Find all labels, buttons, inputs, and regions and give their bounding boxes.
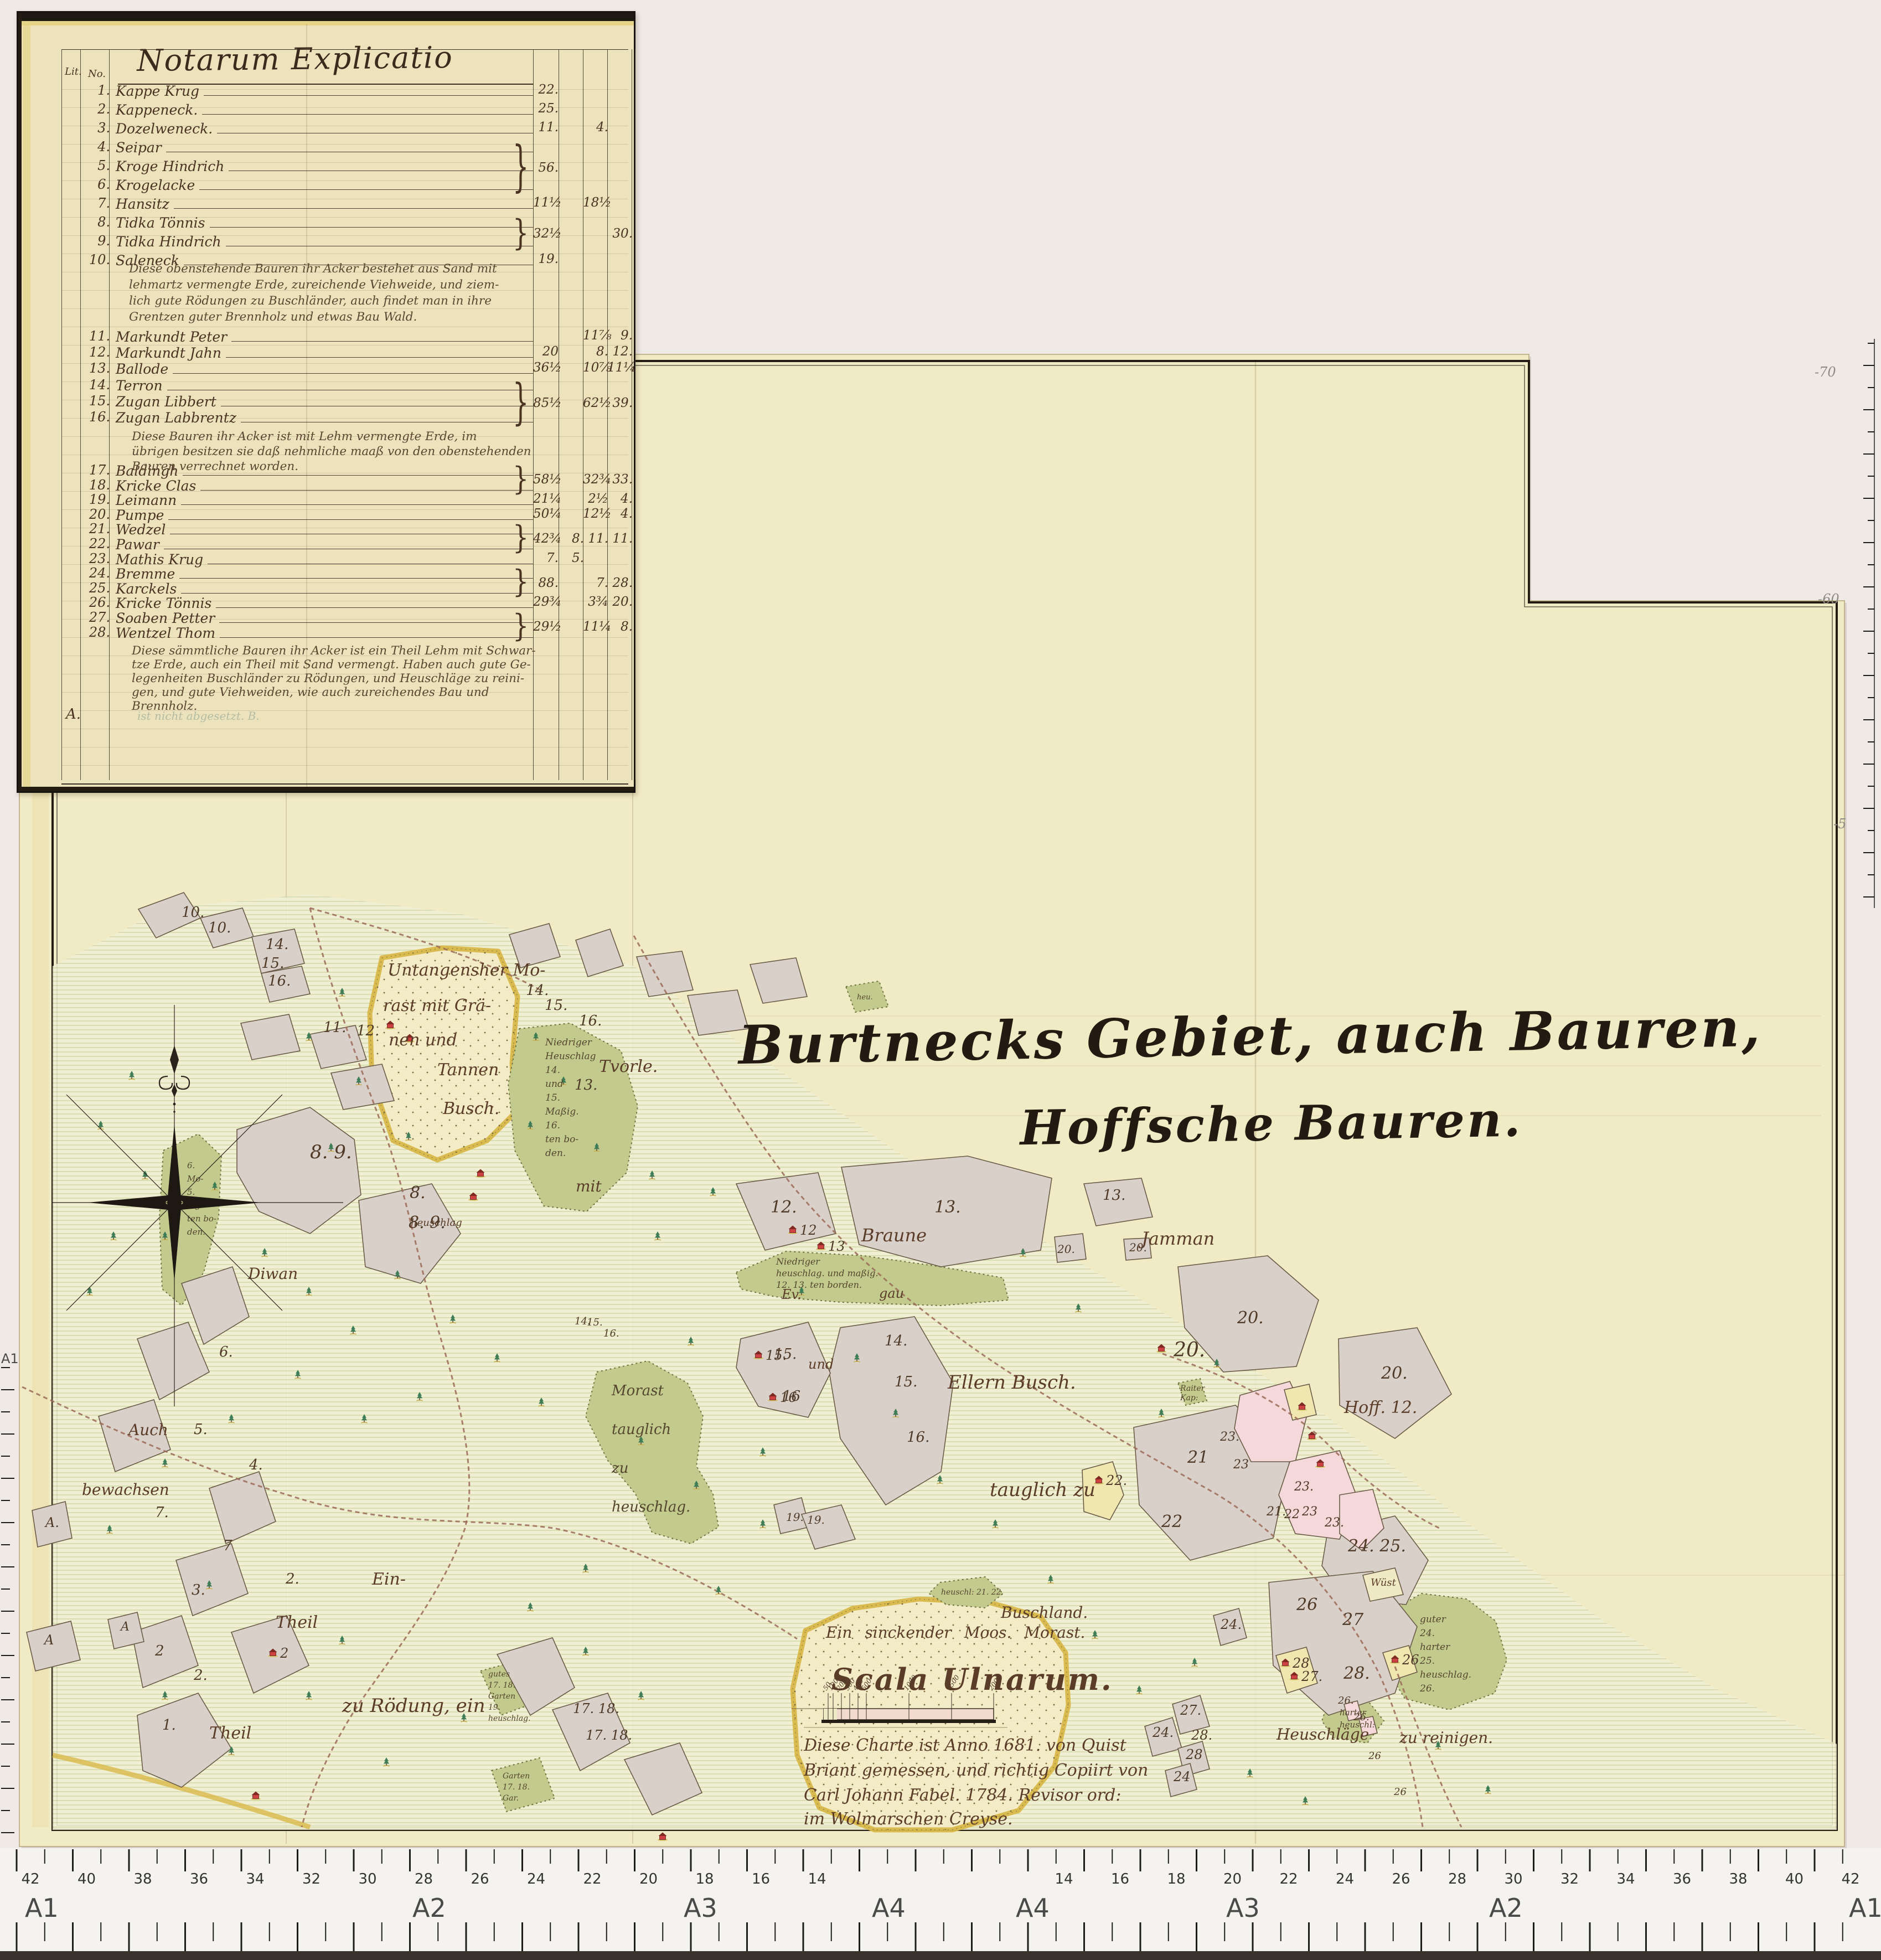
parcel-number: 17. 18. [586, 1727, 632, 1743]
leader-line [231, 341, 533, 342]
row-number: 15. [84, 393, 110, 409]
row-number: 16. [84, 409, 110, 425]
ruler-a-mark: A2 [1489, 1893, 1523, 1923]
farm-name: Kappeneck. [116, 103, 202, 117]
parcel-number: 16. [603, 1328, 619, 1339]
group-brace: } [513, 140, 529, 194]
meadow-label: den. [545, 1148, 566, 1159]
value-cell: 20 [533, 344, 559, 359]
parcel-number: 6. [219, 1344, 233, 1360]
parcel-number: 10. [208, 920, 231, 936]
table-row: Kricke Clas [116, 476, 533, 493]
table-row: Wedzel [116, 520, 533, 537]
meadow-label: den. [187, 1227, 205, 1237]
parcel-number: 7. [155, 1504, 169, 1521]
map-label: zu Rödung, ein [342, 1695, 485, 1717]
ruler-number: 30 [1504, 1871, 1522, 1887]
farm-name: Zugan Libbert [116, 395, 221, 409]
map-label: Ein- [371, 1570, 406, 1589]
leader-line [204, 95, 533, 96]
leader-line [174, 208, 533, 209]
row-number: 24. [84, 565, 110, 581]
value-cell: 3¾ [583, 595, 608, 609]
ruler-number: 20 [1223, 1871, 1242, 1887]
group-brace: } [513, 215, 529, 251]
value-cell: 62½ [583, 396, 608, 410]
faint-note: ist nicht abgesetzt. B. [137, 709, 260, 723]
value-cell: 2½ [583, 492, 608, 506]
farm-name: Hansitz [116, 197, 174, 211]
parcel-number: 24 [1173, 1769, 1191, 1784]
parcel-number: 3. [192, 1582, 205, 1598]
parcel-number: 4. [249, 1457, 263, 1473]
parcel-number: 22 [1161, 1512, 1182, 1531]
map-label: Auch [127, 1421, 168, 1439]
value-cell: 10⅞ [583, 360, 608, 375]
leader-line [202, 114, 533, 115]
table-row: Karckels [116, 579, 533, 596]
group-brace: } [513, 611, 529, 642]
table-row: Terron [116, 376, 533, 393]
value-cell: 22. [533, 82, 559, 97]
parcel-number: 24. 25. [1347, 1536, 1406, 1556]
table-row: Bremme [116, 564, 533, 581]
meadow-label: 6. [187, 1160, 195, 1170]
value-cell: 8. [559, 532, 584, 546]
meadow-label: Garten [503, 1772, 530, 1781]
ruler-number: 36 [190, 1871, 208, 1887]
value-cell: 11⅞ [583, 328, 608, 343]
table-row: Ballode [116, 359, 533, 376]
parcel-number: 23. [1294, 1480, 1314, 1494]
parcel-number: 24. [1220, 1617, 1242, 1632]
map-label: tauglich zu [990, 1479, 1095, 1501]
row-number: 3. [84, 120, 110, 136]
parcel-number: 16. [268, 973, 291, 989]
value-cell: 11¼ [607, 360, 633, 375]
parcel-number: 14. [266, 936, 288, 953]
map-label: Heuschläge [1276, 1725, 1369, 1744]
map-label: Untangensher Mo- [387, 961, 545, 980]
ruler-a-mark: A3 [684, 1893, 717, 1923]
parcel-number: 20. [1381, 1364, 1408, 1383]
row-number: 13. [84, 360, 110, 376]
value-cell: 56. [533, 161, 559, 175]
value-cell: 32¾ [583, 472, 608, 487]
map-label: Ellern Busch. [947, 1371, 1076, 1394]
meadow-label: Niedriger [545, 1037, 592, 1048]
row-number: 8. [84, 214, 110, 230]
leader-line [241, 422, 533, 422]
ruler-number: 36 [1673, 1871, 1691, 1887]
table-row: Tidka Hindrich [116, 232, 533, 249]
ruler-number: 28 [1448, 1871, 1466, 1887]
farm-name: Kappe Krug [116, 84, 204, 98]
row-number: 4. [84, 139, 110, 154]
value-cell: 30. [607, 226, 633, 241]
row-number: 21. [84, 521, 110, 537]
map-label: Buschland. [1000, 1603, 1088, 1622]
value-cell: 11¼ [583, 620, 608, 634]
parcel-number: 8. 9. [310, 1141, 352, 1163]
bottom-ruler: 4240383634323028262422201816141416182022… [0, 1848, 1881, 1960]
parcel-number: 16. [907, 1429, 929, 1446]
value-cell: 9. [607, 328, 633, 343]
parcel-number: 14. [526, 982, 549, 999]
map-label: Tvorle. [599, 1057, 658, 1076]
meadow-label: Morast [611, 1383, 664, 1399]
value-cell: 58½ [533, 472, 559, 487]
leader-line [199, 189, 533, 190]
table-row: Zugan Libbert [116, 392, 533, 409]
table-row: Kappeneck. [116, 100, 533, 117]
meadow-label: guter [1420, 1614, 1446, 1625]
table-row: Pumpe [116, 506, 533, 522]
map-label: gau [879, 1286, 904, 1301]
pencil-mark: -5 [1833, 816, 1846, 832]
row-number: 19. [84, 492, 110, 507]
row-number: 26. [84, 595, 110, 610]
parcel-number: 28. [1343, 1664, 1370, 1683]
ruler-number: 42 [21, 1871, 39, 1887]
value-cell: 8. [607, 620, 633, 634]
meadow-label: 17. 18. [488, 1681, 515, 1690]
row-number: 14. [84, 377, 110, 393]
parcel-number: 12. [771, 1198, 797, 1217]
column-line [80, 49, 81, 780]
row-number: 17. [84, 462, 110, 478]
map-label: Braune [861, 1225, 927, 1246]
leader-line [229, 171, 533, 171]
parcel-number: 13. [1103, 1187, 1125, 1204]
pencil-mark: -60 [1818, 591, 1839, 607]
meadow-label: 17. 18. [503, 1783, 530, 1792]
row-number: 27. [84, 610, 110, 625]
table-row: Zugan Labbrentz [116, 408, 533, 425]
parcel-number: 20. [1237, 1308, 1264, 1328]
ruler-a-mark: A1 [25, 1893, 59, 1923]
farm-name: Kroge Hindrich [116, 159, 229, 173]
value-cell: 11½ [533, 195, 559, 210]
ruler-number: 34 [246, 1871, 264, 1887]
row-number: 12. [84, 344, 110, 360]
meadow-label: ten bo- [187, 1214, 216, 1224]
parcel-number: 15. [587, 1317, 603, 1328]
map-label: Jamman [1138, 1228, 1215, 1249]
parcel-number: 8. 9. [409, 1213, 446, 1232]
parcel-number: 15. [895, 1374, 917, 1390]
value-cell: 19. [533, 252, 559, 266]
farm-name: Markundt Peter [116, 330, 231, 344]
row-number: 2. [84, 101, 110, 117]
parcel-number: 15. [545, 997, 567, 1014]
table-row: Kricke Tönnis [116, 594, 533, 610]
value-cell: 4. [583, 120, 608, 135]
parcel-number: 16. [579, 1013, 602, 1029]
leader-line [166, 152, 533, 152]
value-cell: 50¼ [533, 507, 559, 521]
parcel-number: 20. [1173, 1339, 1205, 1361]
group-brace: } [513, 566, 529, 597]
parcel-number: 22 [1284, 1508, 1300, 1521]
parcel-number: 19. [786, 1510, 804, 1524]
ruler-number: 18 [1167, 1871, 1185, 1887]
parcel-number: 2. [285, 1571, 299, 1587]
parcel-number: A [120, 1620, 130, 1634]
meadow-label: Niedriger [776, 1256, 820, 1267]
meadow-label: heu. [857, 993, 873, 1002]
ruler-number: 34 [1616, 1871, 1635, 1887]
value-cell: 39. [607, 396, 633, 410]
map-label: Diwan [247, 1265, 298, 1283]
meadow-label: zu [611, 1460, 628, 1477]
ruler-number: 22 [583, 1871, 601, 1887]
ruler-number: 26 [471, 1871, 489, 1887]
meadow-label: 19. [488, 1703, 500, 1712]
row-number: 18. [84, 477, 110, 493]
parcel-number: 28 [1185, 1747, 1203, 1762]
parcel-number: 1. [162, 1717, 176, 1734]
meadow-label: und [545, 1079, 564, 1090]
map-parcel [241, 1014, 300, 1060]
table-row: Markundt Peter [116, 327, 533, 344]
meadow-label: 24. [1419, 1628, 1435, 1639]
parcel-number: 14. [885, 1333, 907, 1349]
leader-line [221, 406, 533, 406]
ruler-number: 16 [752, 1871, 770, 1887]
row-number: 7. [84, 195, 110, 211]
table-title: Notarum Explicatio [85, 39, 506, 79]
sheet-border-left [18, 13, 22, 791]
value-cell: 36½ [533, 360, 559, 375]
value-cell: 7. [533, 551, 559, 565]
map-label: Hoff. 12. [1343, 1398, 1417, 1417]
meadow-label: 15. [545, 1092, 560, 1103]
farm-name: Terron [116, 379, 167, 393]
map-label: nen und [389, 1030, 457, 1050]
parcel-number: 5. [194, 1421, 208, 1438]
farm-name: Zugan Labbrentz [116, 411, 241, 425]
value-cell: 4. [607, 507, 633, 521]
value-cell: 29½ [533, 620, 559, 634]
scan-stage: 121315.1622.2827.262 NiedrigerHeuschlag1… [0, 0, 1881, 1960]
table-row: Kappe Krug [116, 81, 533, 98]
value-cell: 88. [533, 576, 559, 590]
table-row: Dozelweneck. [116, 119, 533, 136]
ruled-line [61, 747, 628, 747]
ruler-a-mark: A4 [1016, 1893, 1050, 1923]
value-cell: 29¾ [533, 595, 559, 609]
leader-line [167, 390, 533, 390]
value-cell: 7. [583, 576, 608, 590]
parcel-number: 26 [1393, 1786, 1407, 1798]
parcel-number: 23. [1324, 1516, 1344, 1530]
ruler-number: 40 [1785, 1871, 1804, 1887]
leader-line [226, 357, 533, 358]
map-label: Wüst [1371, 1577, 1397, 1588]
farm-name: Wentzel Thom [116, 626, 220, 640]
note-line: Carl Johann Fabel. 1784. Revisor ord: [804, 1786, 1121, 1805]
parcel-number: 8. [410, 1183, 426, 1203]
parcel-number: 15. [261, 955, 284, 972]
ruler-number: 24 [1336, 1871, 1354, 1887]
value-cell: 25. [533, 101, 559, 116]
sheet-gold-left [23, 24, 30, 787]
ruler-a-mark: A2 [412, 1893, 446, 1923]
column-line [61, 49, 62, 780]
ruled-line [61, 729, 628, 729]
meadow-label: 14. [545, 1065, 560, 1076]
farm-name: Dozelweneck. [116, 122, 217, 136]
ruler-number: 22 [1279, 1871, 1298, 1887]
parcel-number: 19. [807, 1513, 825, 1526]
map-label: Tannen [437, 1060, 499, 1080]
parcel-number: 2 [154, 1643, 164, 1659]
ruler-number: 14 [1055, 1871, 1073, 1887]
column-line [632, 49, 632, 780]
parcel-number: 26. [1337, 1695, 1354, 1706]
leader-line [217, 133, 533, 133]
row-number: 5. [84, 158, 110, 173]
table-row: Soaben Petter [116, 608, 533, 625]
farm-name: Ballode [116, 362, 173, 376]
ruler-a-mark: A4 [872, 1893, 906, 1923]
row-number: 22. [84, 536, 110, 551]
table-paragraph-1: Diese obenstehende Bauren ihr Acker best… [129, 261, 499, 325]
row-number: 23. [84, 551, 110, 566]
parcel-number: 23 [1233, 1458, 1249, 1472]
ruler-number: 38 [1729, 1871, 1747, 1887]
value-cell: 11. [607, 532, 633, 546]
ruler-number: 32 [1560, 1871, 1579, 1887]
ruled-line [61, 765, 628, 766]
farm-name: Seipar [116, 141, 166, 154]
value-cell: 28. [607, 576, 633, 590]
map-title-line2: Hoffsche Bauren. [1018, 1091, 1523, 1156]
table-row: Hansitz [116, 194, 533, 211]
value-cell: 8. [583, 344, 608, 359]
value-cell: 32½ [533, 226, 559, 241]
map-label: mit [576, 1177, 602, 1195]
grid-bottom-line [61, 783, 628, 785]
meadow-label: gutes [488, 1670, 510, 1679]
col-header-no: No. [88, 68, 106, 80]
ruler-number: 16 [1111, 1871, 1129, 1887]
row-number: 10. [84, 252, 110, 267]
parcel-number: 26 [1368, 1750, 1381, 1762]
meadow-label: heuschlag. [1420, 1669, 1471, 1680]
map-label: Theil [209, 1724, 251, 1743]
map-label: Busch. [442, 1099, 499, 1118]
parcel-number: 21. [1266, 1505, 1286, 1519]
house-number: 12 [800, 1223, 817, 1238]
sheet-border-top [18, 13, 634, 21]
house-number: 27. [1301, 1669, 1322, 1684]
meadow-label: heuschlag. [488, 1714, 531, 1723]
meadow-label: tauglich [612, 1421, 671, 1438]
parcel-number: 27. [1180, 1703, 1201, 1718]
parcel-number: 23. [1219, 1430, 1239, 1444]
sheet-gold-strip [18, 21, 634, 25]
meadow-label: Raiter [1180, 1384, 1206, 1393]
map-label: Theil [276, 1613, 318, 1632]
leader-line [226, 246, 533, 246]
meadow-label: Garten [488, 1692, 515, 1701]
ruler-number: 26 [1392, 1871, 1410, 1887]
meadow-label: heuschl: 21. 22. [941, 1588, 1004, 1597]
parcel-number: 16 [782, 1388, 800, 1405]
leader-line [210, 227, 534, 228]
value-cell: 33. [607, 472, 633, 487]
parcel-number: 21 [1187, 1448, 1208, 1467]
column-line [635, 49, 635, 780]
sheet-border-bottom [18, 787, 634, 791]
map-label: und [808, 1356, 834, 1372]
meadow-label: Heuschlag [545, 1051, 596, 1062]
table-paragraph-3: Diese sämmtliche Bauren ihr Acker ist ei… [132, 644, 536, 713]
ruler-a-mark: A1 [1849, 1893, 1881, 1923]
farm-name: Tidka Tönnis [116, 216, 210, 230]
ruler-a-label: A1 [1, 1351, 19, 1366]
value-cell: 11. [583, 532, 608, 546]
meadow-label: 16. [545, 1120, 560, 1131]
ruler-number: 14 [808, 1871, 826, 1887]
parcel-number: 12. [356, 1023, 379, 1039]
meadow-label: heuschlag. [612, 1499, 690, 1515]
parcel-number: 23 [1301, 1505, 1317, 1519]
meadow-label: 26. [1419, 1683, 1435, 1694]
value-cell: 20. [607, 595, 633, 609]
ruler-number: 38 [133, 1871, 152, 1887]
parcel-number: 27 [1342, 1610, 1364, 1629]
parcel-number: 17. 18. [573, 1701, 619, 1716]
table-row: Seipar [116, 138, 533, 154]
ruler-number: 28 [415, 1871, 433, 1887]
value-cell: 4. [607, 492, 633, 506]
table-row: Krogelacke [116, 176, 533, 192]
table-row: Leimann [116, 491, 533, 507]
house-number: 22. [1105, 1473, 1127, 1488]
group-brace: } [513, 522, 529, 554]
meadow-label: Kap: [1180, 1394, 1198, 1402]
parcel-number: A. [44, 1515, 59, 1530]
table-row: Kroge Hindrich [116, 157, 533, 173]
map-label: bewachsen [82, 1481, 169, 1499]
parcel-number: 26. [1353, 1711, 1370, 1723]
parcel-number: 20. [1057, 1242, 1075, 1256]
farm-name: Krogelacke [116, 178, 199, 192]
value-cell: 12½ [583, 507, 608, 521]
house-number: 2 [280, 1646, 288, 1661]
farm-name: Markundt Jahn [116, 346, 226, 360]
row-number: 28. [84, 625, 110, 640]
note-line: im Wolmarschen Creyse. [804, 1809, 1013, 1829]
parcel-number: 11. [323, 1019, 346, 1036]
parcel-number: 28. [1191, 1727, 1212, 1743]
table-row: Markundt Jahn [116, 343, 533, 360]
group-brace: } [513, 378, 529, 427]
house-number: 13 [828, 1239, 845, 1254]
ruler-a-mark: A3 [1226, 1893, 1260, 1923]
parcel-number: 15. [774, 1346, 797, 1363]
row-number: 25. [84, 580, 110, 596]
ruler-number: 18 [695, 1871, 714, 1887]
row-number: 9. [84, 233, 110, 249]
grid-top-line [61, 49, 628, 50]
value-cell: 21¼ [533, 492, 559, 506]
table-row: Pawar [116, 535, 533, 551]
parcel-number: 24. [1152, 1725, 1174, 1740]
